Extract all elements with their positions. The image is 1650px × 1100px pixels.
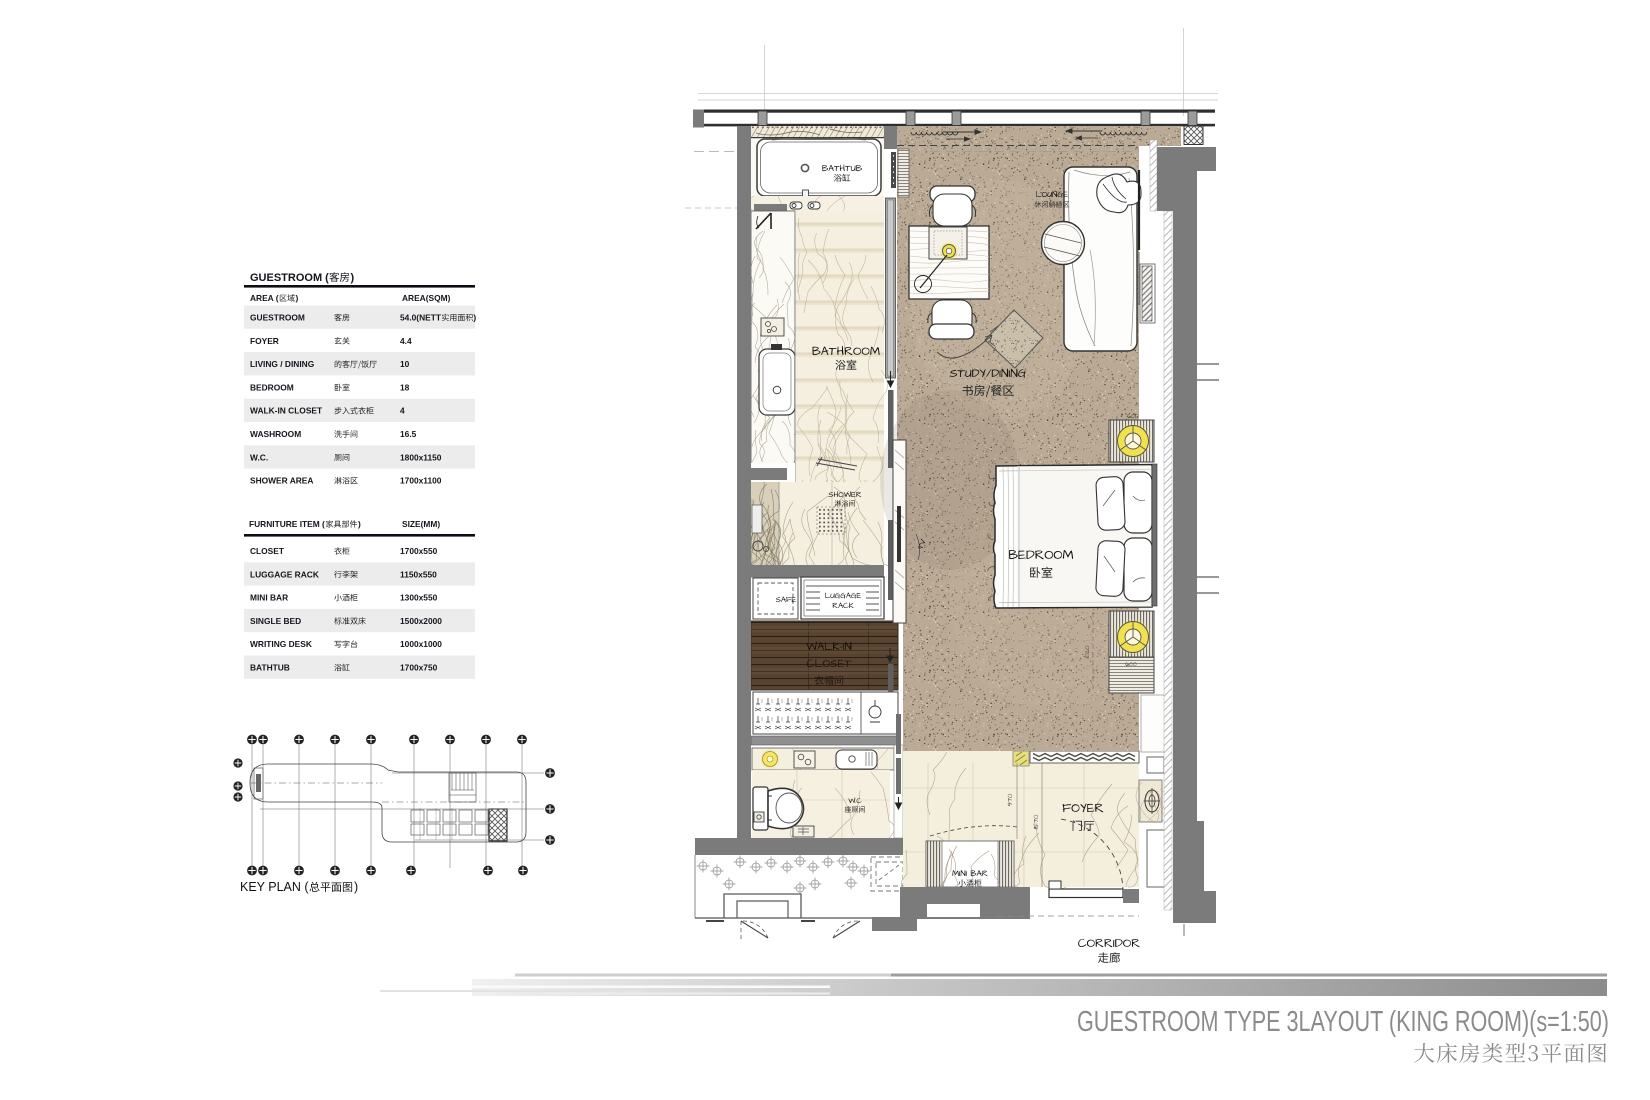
svg-text:FOYER: FOYER [250,336,279,346]
svg-text:BATHTUB: BATHTUB [250,663,290,673]
svg-text:GUESTROOM: GUESTROOM [250,313,305,323]
svg-text:1500x2000: 1500x2000 [400,616,442,626]
svg-text:GUESTROOM (: GUESTROOM ( [250,272,329,284]
svg-text:1000x1000: 1000x1000 [400,639,442,649]
svg-text:1300x550: 1300x550 [400,593,438,603]
svg-text:WASHROOM: WASHROOM [250,429,301,439]
svg-text:1800x1150: 1800x1150 [400,452,442,462]
svg-text:KEY PLAN (: KEY PLAN ( [240,880,309,894]
svg-text:): ) [354,880,358,894]
svg-text:WRITING DESK: WRITING DESK [250,639,312,649]
svg-text:4.4: 4.4 [400,336,412,346]
svg-text:GUESTROOM TYPE 3LAYOUT (KING: GUESTROOM TYPE 3LAYOUT (KING ROOM)(s=1:5… [1077,1006,1609,1038]
svg-text:LUGGAGE RACK: LUGGAGE RACK [250,569,319,579]
svg-text:): ) [296,293,299,303]
svg-text:1150x550: 1150x550 [400,569,437,579]
svg-text:1700x550: 1700x550 [400,546,438,556]
svg-text:10: 10 [400,359,410,369]
svg-text:BEDROOM: BEDROOM [250,382,294,392]
svg-text:LIVING / DINING: LIVING / DINING [250,359,314,369]
svg-text:54.0(NETT: 54.0(NETT [400,313,442,323]
svg-text:SHOWER AREA: SHOWER AREA [250,476,313,486]
svg-text:W.C.: W.C. [250,452,268,462]
svg-text:CLOSET: CLOSET [250,546,285,556]
svg-text:4: 4 [400,406,405,416]
svg-text:SIZE(MM): SIZE(MM) [402,519,440,529]
svg-text:): ) [473,313,476,323]
svg-text:WALK-IN CLOSET: WALK-IN CLOSET [250,406,323,416]
svg-text:18: 18 [400,382,410,392]
svg-text:1700x1100: 1700x1100 [400,476,442,486]
svg-text:): ) [358,519,361,529]
svg-text:AREA (: AREA ( [250,293,279,303]
svg-text:): ) [351,272,355,284]
svg-text:FURNITURE ITEM (: FURNITURE ITEM ( [249,519,325,529]
svg-text:SINGLE BED: SINGLE BED [250,616,301,626]
svg-text:16.5: 16.5 [400,429,417,439]
svg-text:AREA(SQM): AREA(SQM) [402,293,451,303]
svg-text:1700x750: 1700x750 [400,663,438,673]
svg-text:MINI BAR: MINI BAR [250,593,288,603]
